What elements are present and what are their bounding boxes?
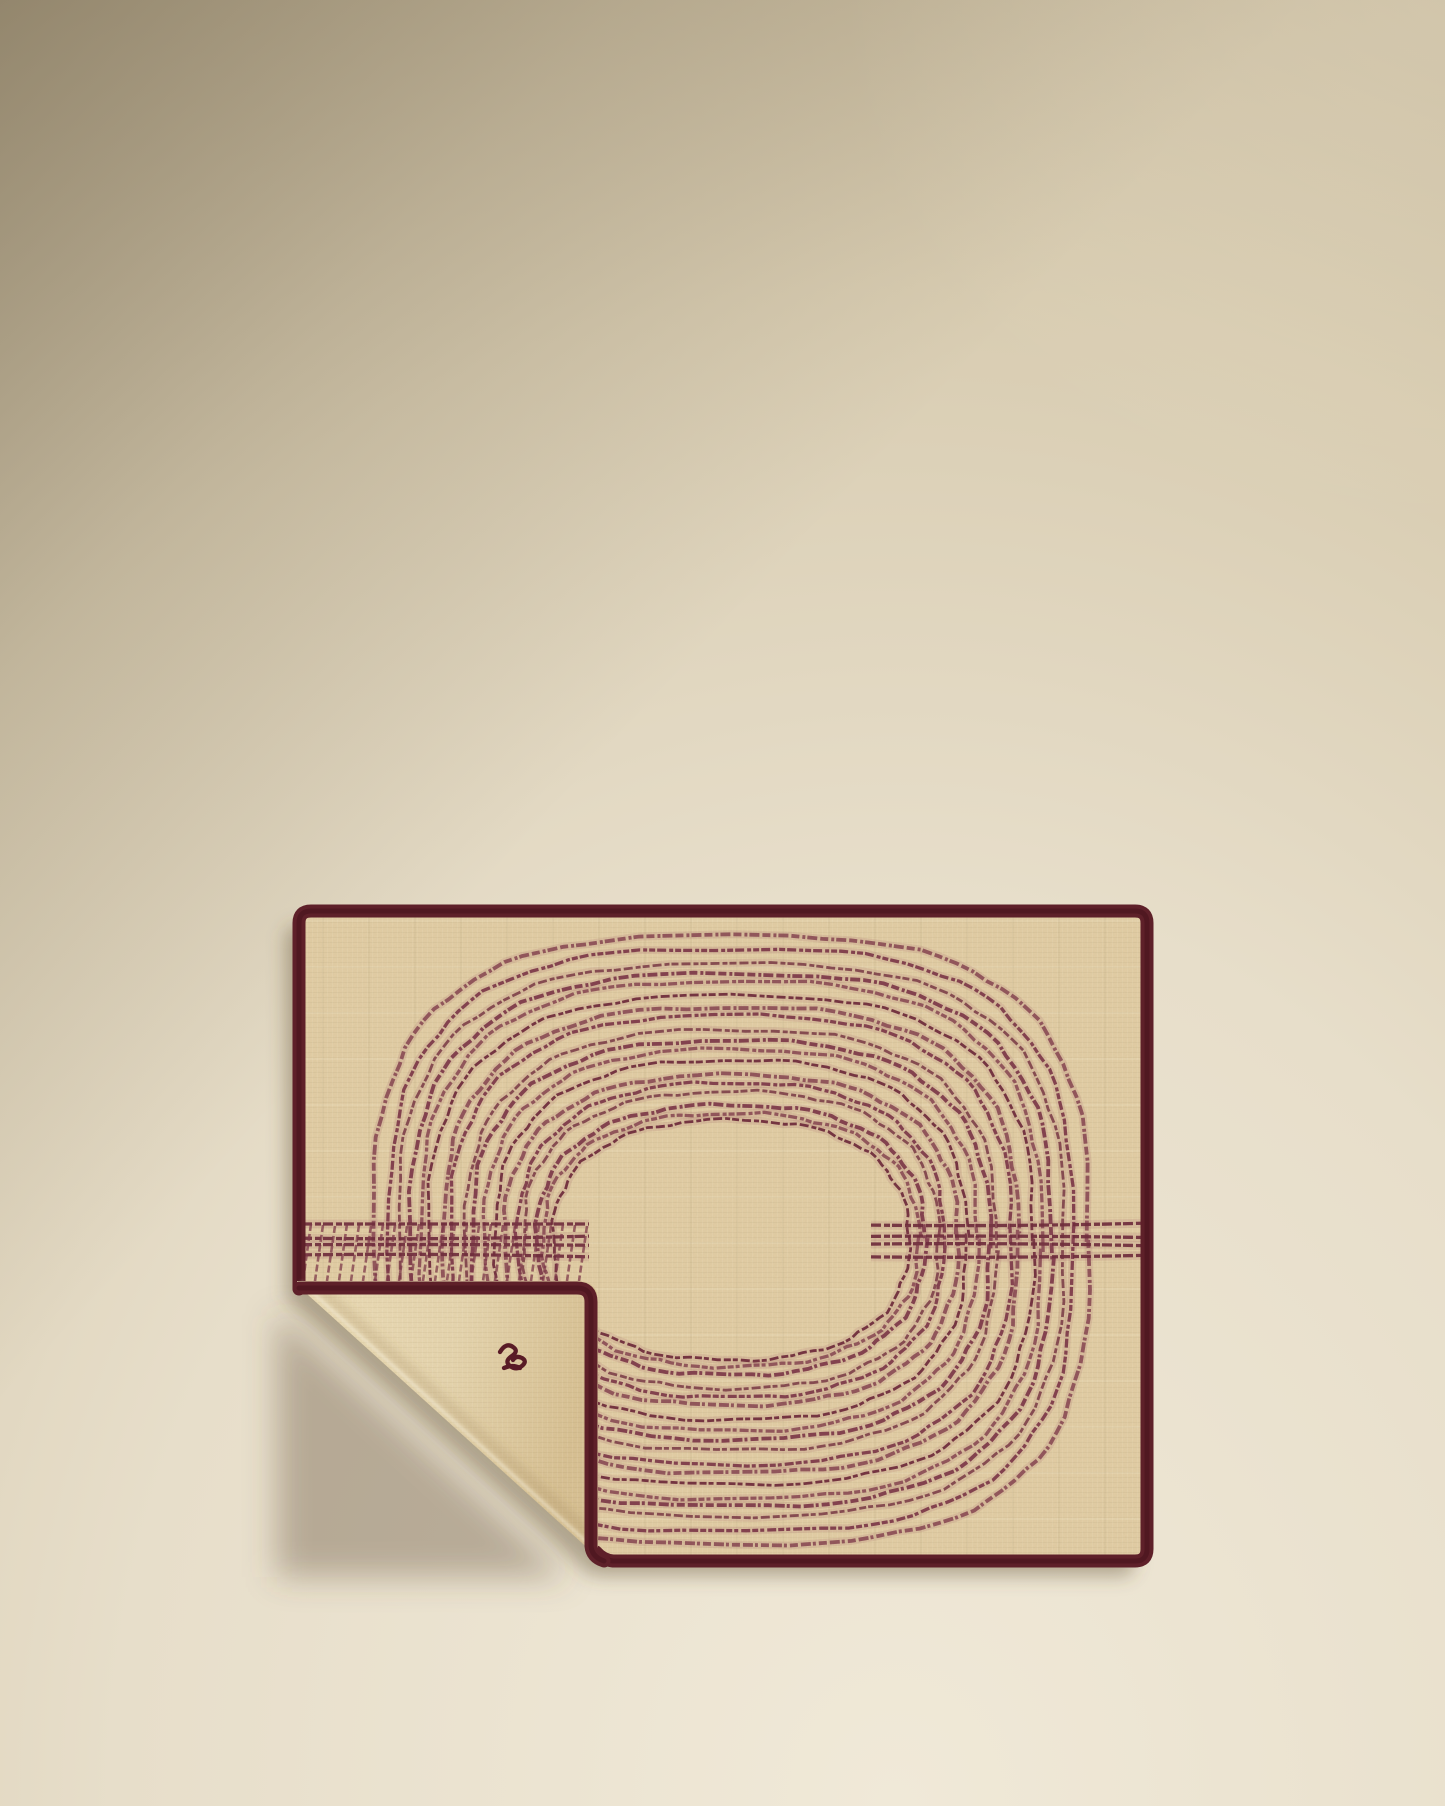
product-photo: Product photo: beige linen placemat with… <box>0 0 1445 1806</box>
placemat-scene <box>0 0 1445 1806</box>
